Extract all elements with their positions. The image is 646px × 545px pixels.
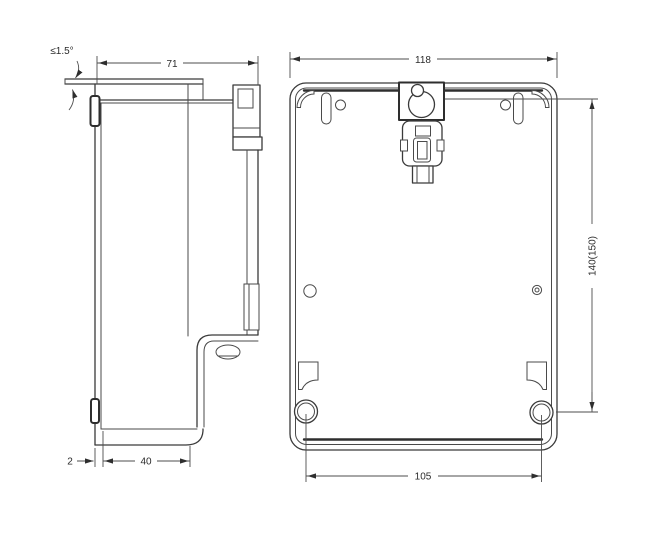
dim-2: 2 <box>67 431 103 468</box>
side-seal-panel <box>244 284 259 330</box>
side-hook-bracket <box>233 85 262 150</box>
dim-tilt-angle: ≤1.5° <box>50 46 78 110</box>
rear-tab-bottom-left <box>299 362 319 390</box>
rear-tab-bottom-right <box>527 362 547 390</box>
dim-label-118: 118 <box>415 55 431 66</box>
side-back-clip-bottom <box>91 399 99 423</box>
dim-118: 118 <box>290 52 557 78</box>
side-bottom-lip <box>95 429 203 445</box>
side-top-flange <box>65 79 203 100</box>
rear-slot-right <box>514 93 524 124</box>
rear-latch-tab <box>413 166 434 183</box>
side-back-clip-top <box>91 96 100 126</box>
side-terminal-step <box>197 335 258 427</box>
rear-keyhole-bracket <box>399 83 444 184</box>
rear-hole-top-right <box>501 100 511 110</box>
dim-label-2: 2 <box>67 457 73 468</box>
dim-label-40: 40 <box>140 457 152 468</box>
drawing-svg: 71 ≤1.5° 2 40 <box>0 0 646 545</box>
dim-label-71: 71 <box>166 59 178 70</box>
dim-105: 105 <box>306 414 542 483</box>
rear-hole-top-left <box>336 100 346 110</box>
dim-140-150: 140(150) <box>445 99 599 412</box>
dim-40: 40 <box>103 446 190 468</box>
dim-label-140-150: 140(150) <box>588 236 599 276</box>
rear-hole-mid-right <box>532 285 541 294</box>
rear-hole-mid-left <box>304 285 316 297</box>
side-view <box>65 79 262 445</box>
dim-71: 71 <box>97 56 258 85</box>
rear-corner-fillet-left <box>297 91 314 108</box>
dim-label-105: 105 <box>415 472 432 483</box>
technical-drawing-page: 71 ≤1.5° 2 40 <box>0 0 646 545</box>
rear-slot-left <box>322 93 332 124</box>
keyhole-notch <box>412 85 424 97</box>
rear-view <box>290 83 557 451</box>
dim-label-tilt-angle: ≤1.5° <box>50 46 73 57</box>
